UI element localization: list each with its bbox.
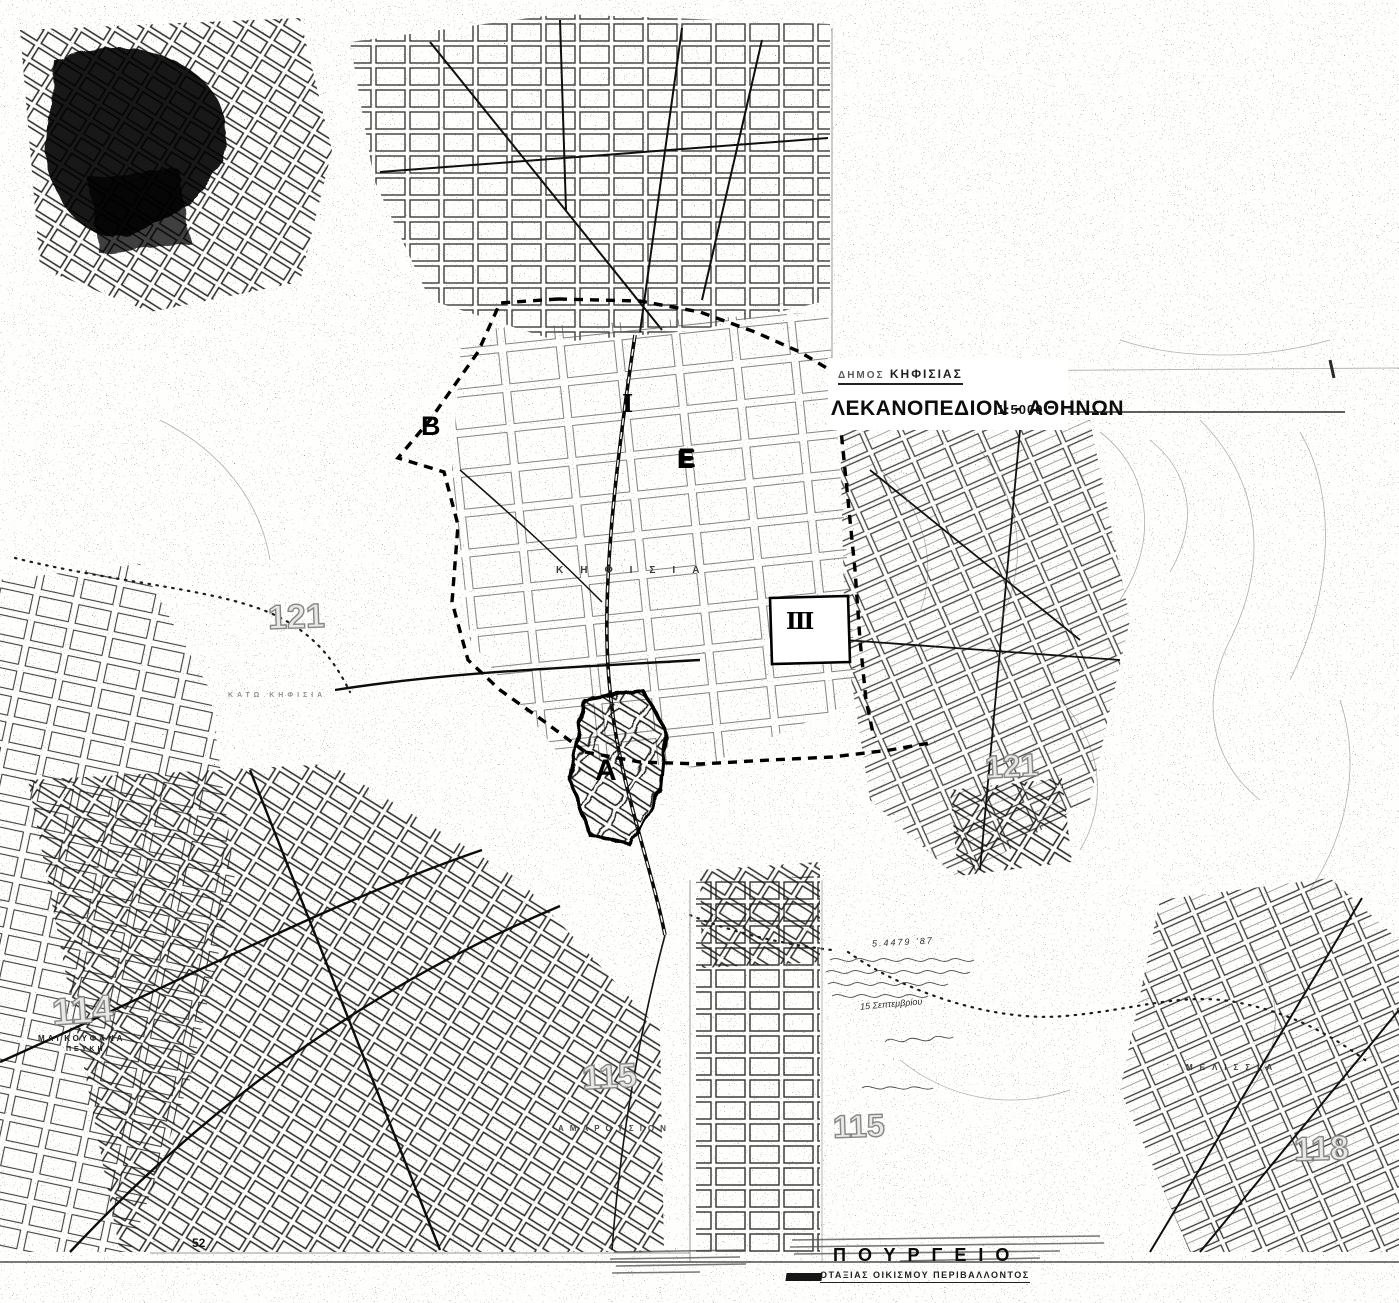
map-artwork [0,0,1399,1303]
zone-marker-a: Α [595,756,617,786]
place-name-kato-kifisia: ΚΑΤΩ ΚΗΦΙΣΙΑ [228,692,326,699]
place-name-kifisia: ΚΗΦΙΣΙΑ [556,566,716,576]
ministry-imprint-line1: ΠΟΥΡΓΕΙΟ [833,1246,1021,1264]
scanned-map-page: ΔΗΜΟΣ ΚΗΦΙΣΙΑΣ ΛΕΚΑΝΟΠΕΔΙΟΝ - ΑΘΗΝΩΝ 1:5… [0,0,1399,1303]
road-number-52: 52 [192,1237,205,1249]
zone-marker-iii: ΙΙΙ [786,610,812,633]
map-scale: 1:5000 [997,403,1043,416]
sheet-number-121-west: 121 [267,599,325,635]
ink-smudge [785,1273,822,1281]
municipality-word2: ΚΗΦΙΣΙΑΣ [890,367,963,381]
ministry-imprint-line2: ΟΤΑΞΙΑΣ ΟΙΚΙΣΜΟΥ ΠΕΡΙΒΑΛΛΟΝΤΟΣ [820,1271,1030,1283]
municipality-word1: ΔΗΜΟΣ [838,370,885,381]
sheet-number-115-east: 115 [832,1109,885,1143]
place-name-melissia: ΜΕΛΙΣΣΙΑ [1186,1064,1279,1072]
sheet-number-118: 118 [1293,1131,1349,1167]
zone-marker-i: Ι [622,392,633,416]
sheet-number-115-west: 115 [581,1059,638,1096]
map-title: ΛΕΚΑΝΟΠΕΔΙΟΝ - ΑΘΗΝΩΝ [831,398,1124,419]
municipality-label: ΔΗΜΟΣ ΚΗΦΙΣΙΑΣ [838,368,963,385]
sheet-number-114: 114 [51,990,115,1032]
place-name-pefki: ΠΕΥΚΗ [66,1046,106,1053]
sheet-number-121-east: 121 [984,749,1039,784]
place-name-amarousion: ΑΜΑΡΟΥΣΙΟΝ [558,1125,672,1133]
place-name-magkoufana: ΜΑΓΚΟΥΦΑΝΑ [38,1035,125,1043]
zone-marker-e: Ε [678,446,695,471]
zone-marker-b: Β [421,413,441,440]
